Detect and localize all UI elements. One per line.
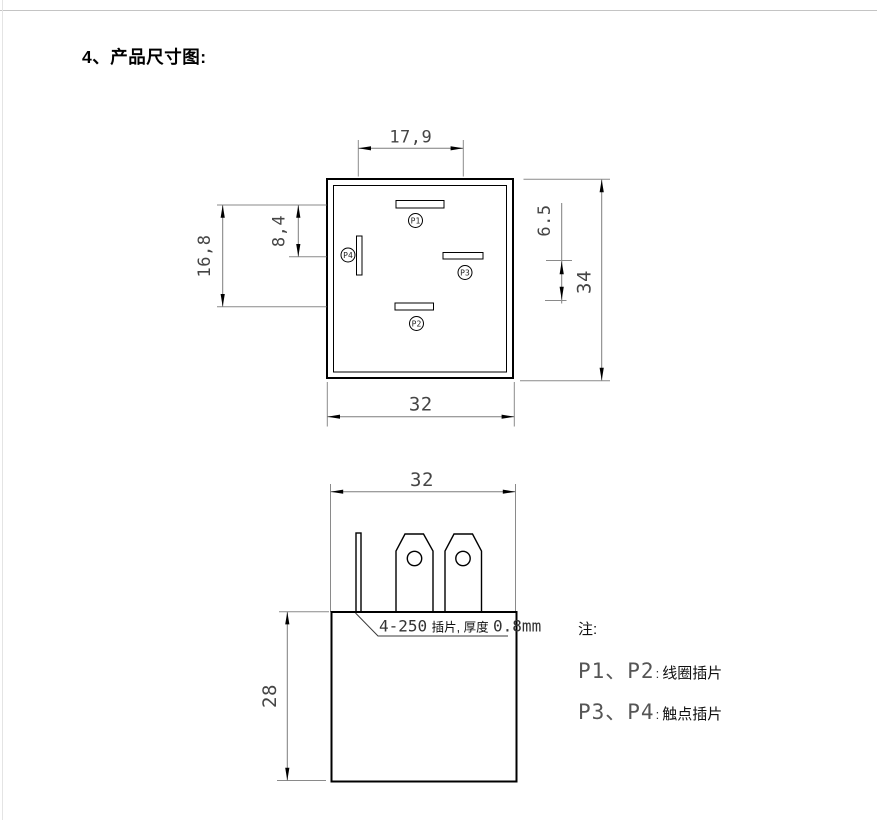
top-view: P1 P4 P3 P2 17,9 16,8 8,4 34 <box>195 128 610 427</box>
dim-32side-value: 32 <box>410 469 434 491</box>
pin-p3-label: P3 <box>460 268 470 277</box>
datasheet-page: 4、产品尺寸图: P1 P4 P3 P <box>0 0 877 820</box>
note-contact-separator: : <box>656 707 660 722</box>
pin-p2-slot <box>395 303 434 310</box>
pin-p1-label: P1 <box>411 216 421 225</box>
notes-block: 注: P1、P2 : 线圈插片 P3、P4 : 触点插片 <box>578 618 858 737</box>
pin-p1-slot <box>396 201 444 209</box>
note-contact-label: 触点插片 <box>662 703 722 724</box>
relay-body-outline <box>332 612 517 782</box>
pin-p2-label: P2 <box>412 319 422 328</box>
terminal-tab-1 <box>396 534 433 612</box>
terminal-spec-thickness: 0.8mm <box>493 617 541 636</box>
note-coil-label: 线圈插片 <box>662 662 722 683</box>
dim-34-value: 34 <box>574 270 596 294</box>
dim-17-9-value: 17,9 <box>389 128 432 148</box>
note-coil-pins: P1、P2 : 线圈插片 <box>578 655 858 685</box>
terminal-tab-1-hole <box>407 551 421 565</box>
note-coil-pin-names: P1、P2 <box>578 655 655 685</box>
pin-p4-label: P4 <box>343 251 353 260</box>
note-contact-pins: P3、P4 : 触点插片 <box>578 696 858 726</box>
terminal-thin-tab <box>356 533 361 612</box>
dim-8-4-value: 8,4 <box>270 215 290 247</box>
terminal-tab-2 <box>445 534 482 612</box>
terminal-spec-type: 4-250 <box>379 617 427 636</box>
dim-28-value: 28 <box>259 684 281 708</box>
notes-heading: 注: <box>578 618 858 639</box>
terminal-tab-2-hole <box>456 551 470 565</box>
pin-p3-slot <box>443 253 483 260</box>
dim-6-5-value: 6.5 <box>535 204 555 236</box>
pin-p4-slot <box>357 236 363 275</box>
dim-16-8-value: 16,8 <box>195 235 215 278</box>
terminal-spec-cn: 插片, 厚度 <box>432 620 489 635</box>
note-coil-separator: : <box>656 666 660 681</box>
dim-32top-value: 32 <box>409 394 433 416</box>
relay-outline-inner <box>334 186 507 373</box>
note-contact-pin-names: P3、P4 <box>578 696 655 726</box>
side-view: 32 4-250 插片, 厚度 0.8mm 28 <box>259 469 541 782</box>
